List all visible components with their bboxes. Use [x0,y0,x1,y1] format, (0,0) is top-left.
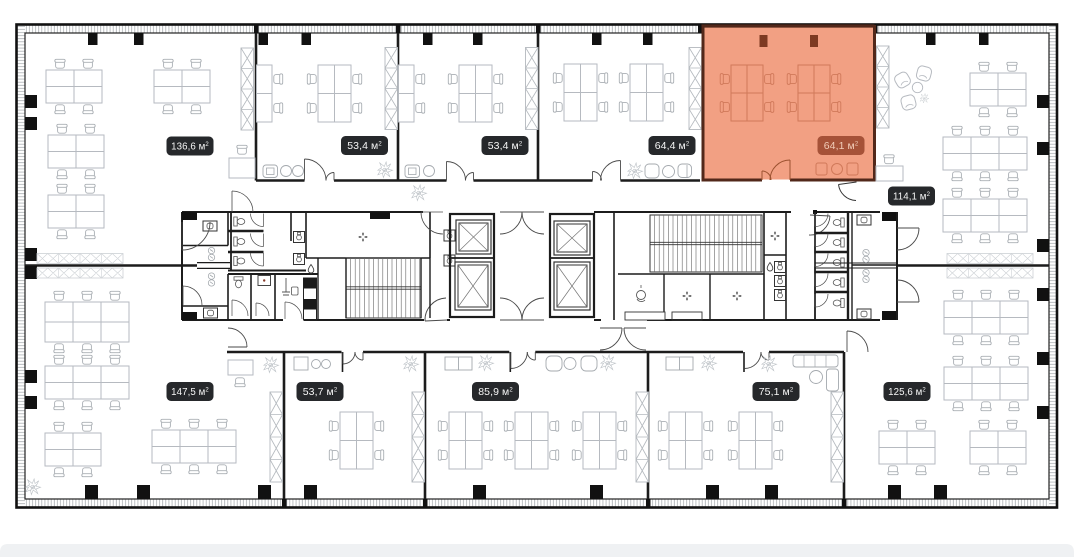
svg-text:64,1 м2: 64,1 м2 [824,140,859,152]
svg-text:64,4 м2: 64,4 м2 [655,140,690,152]
svg-text:75,1 м2: 75,1 м2 [759,386,794,398]
svg-text:114,1 м2: 114,1 м2 [893,192,931,203]
svg-text:53,4 м2: 53,4 м2 [488,140,523,152]
svg-text:125,6 м2: 125,6 м2 [888,387,926,398]
svg-text:53,7 м2: 53,7 м2 [303,386,338,398]
svg-text:136,6 м2: 136,6 м2 [171,142,209,153]
svg-text:85,9 м2: 85,9 м2 [478,386,513,398]
svg-text:147,5 м2: 147,5 м2 [171,387,209,398]
svg-text:53,4 м2: 53,4 м2 [347,140,382,152]
